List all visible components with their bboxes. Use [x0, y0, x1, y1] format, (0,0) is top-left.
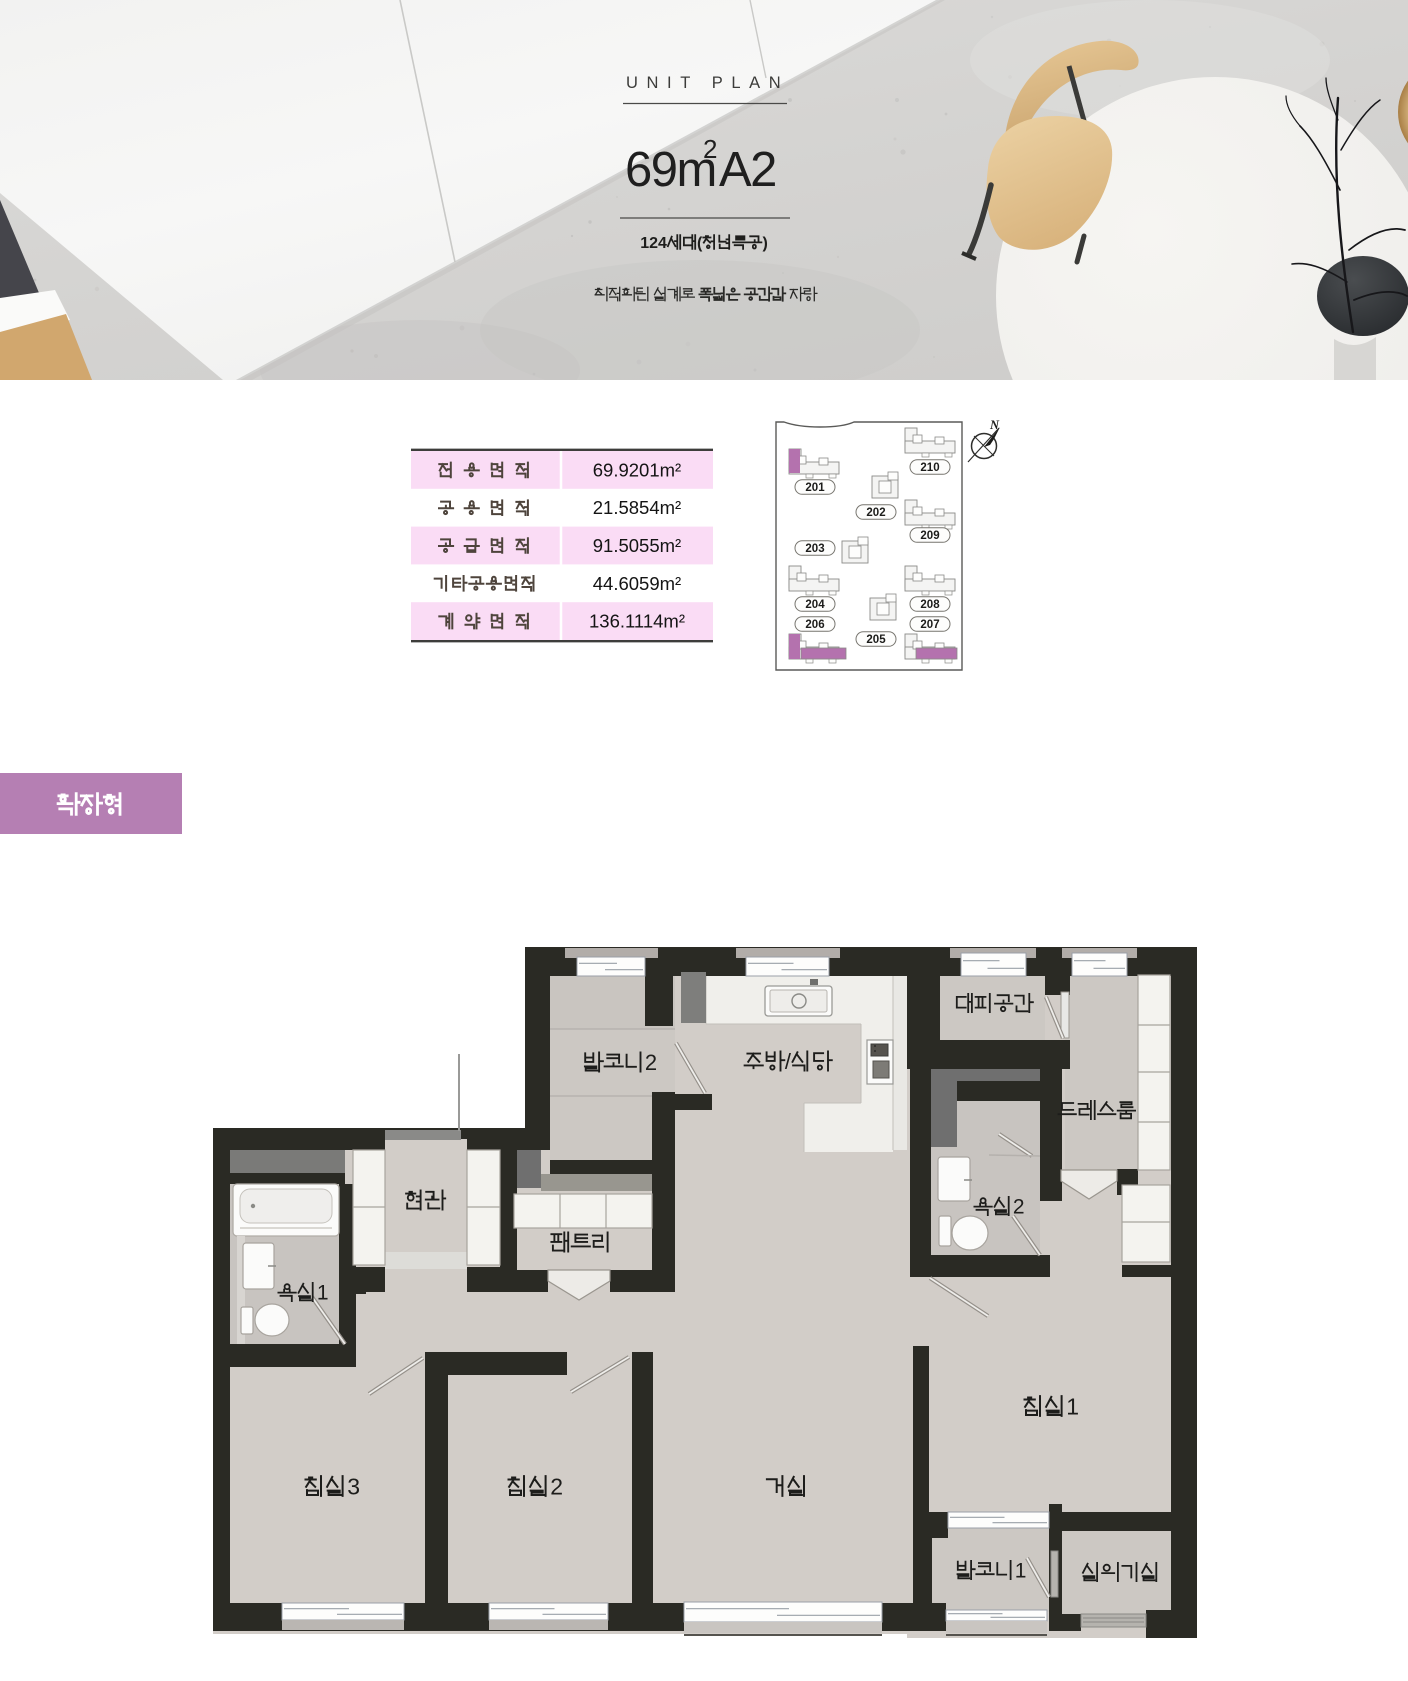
svg-text:(: ( [697, 235, 703, 252]
svg-text:203: 203 [805, 543, 824, 555]
svg-text:1: 1 [1015, 1560, 1027, 1583]
svg-text:): ) [763, 235, 768, 252]
svg-text:208: 208 [920, 599, 940, 611]
svg-text:201: 201 [805, 482, 825, 494]
svg-text:210: 210 [920, 462, 939, 474]
svg-text:205: 205 [866, 634, 886, 646]
svg-text:69.9201m²: 69.9201m² [593, 459, 681, 480]
svg-text:136.1114m²: 136.1114m² [589, 611, 685, 632]
svg-text:91.5055m²: 91.5055m² [593, 535, 681, 556]
svg-text:21.5854m²: 21.5854m² [593, 497, 681, 518]
svg-text:N: N [989, 418, 1000, 432]
svg-text:/: / [785, 1049, 792, 1074]
svg-text:2: 2 [1013, 1196, 1025, 1219]
svg-text:202: 202 [866, 507, 885, 519]
svg-text:1: 1 [1066, 1393, 1079, 1419]
svg-text:124: 124 [640, 235, 667, 252]
svg-text:3: 3 [347, 1473, 360, 1499]
svg-text:44.6059m²: 44.6059m² [593, 573, 681, 594]
svg-text:204: 204 [805, 599, 825, 611]
svg-text:206: 206 [805, 619, 824, 631]
svg-text:2: 2 [645, 1050, 657, 1075]
svg-text:2: 2 [550, 1473, 563, 1499]
svg-text:207: 207 [920, 619, 939, 631]
svg-text:1: 1 [317, 1282, 329, 1305]
svg-text:UNIT PLAN: UNIT PLAN [626, 74, 789, 92]
svg-text:209: 209 [920, 530, 939, 542]
svg-text:A2: A2 [719, 143, 776, 197]
svg-text:2: 2 [703, 134, 717, 164]
